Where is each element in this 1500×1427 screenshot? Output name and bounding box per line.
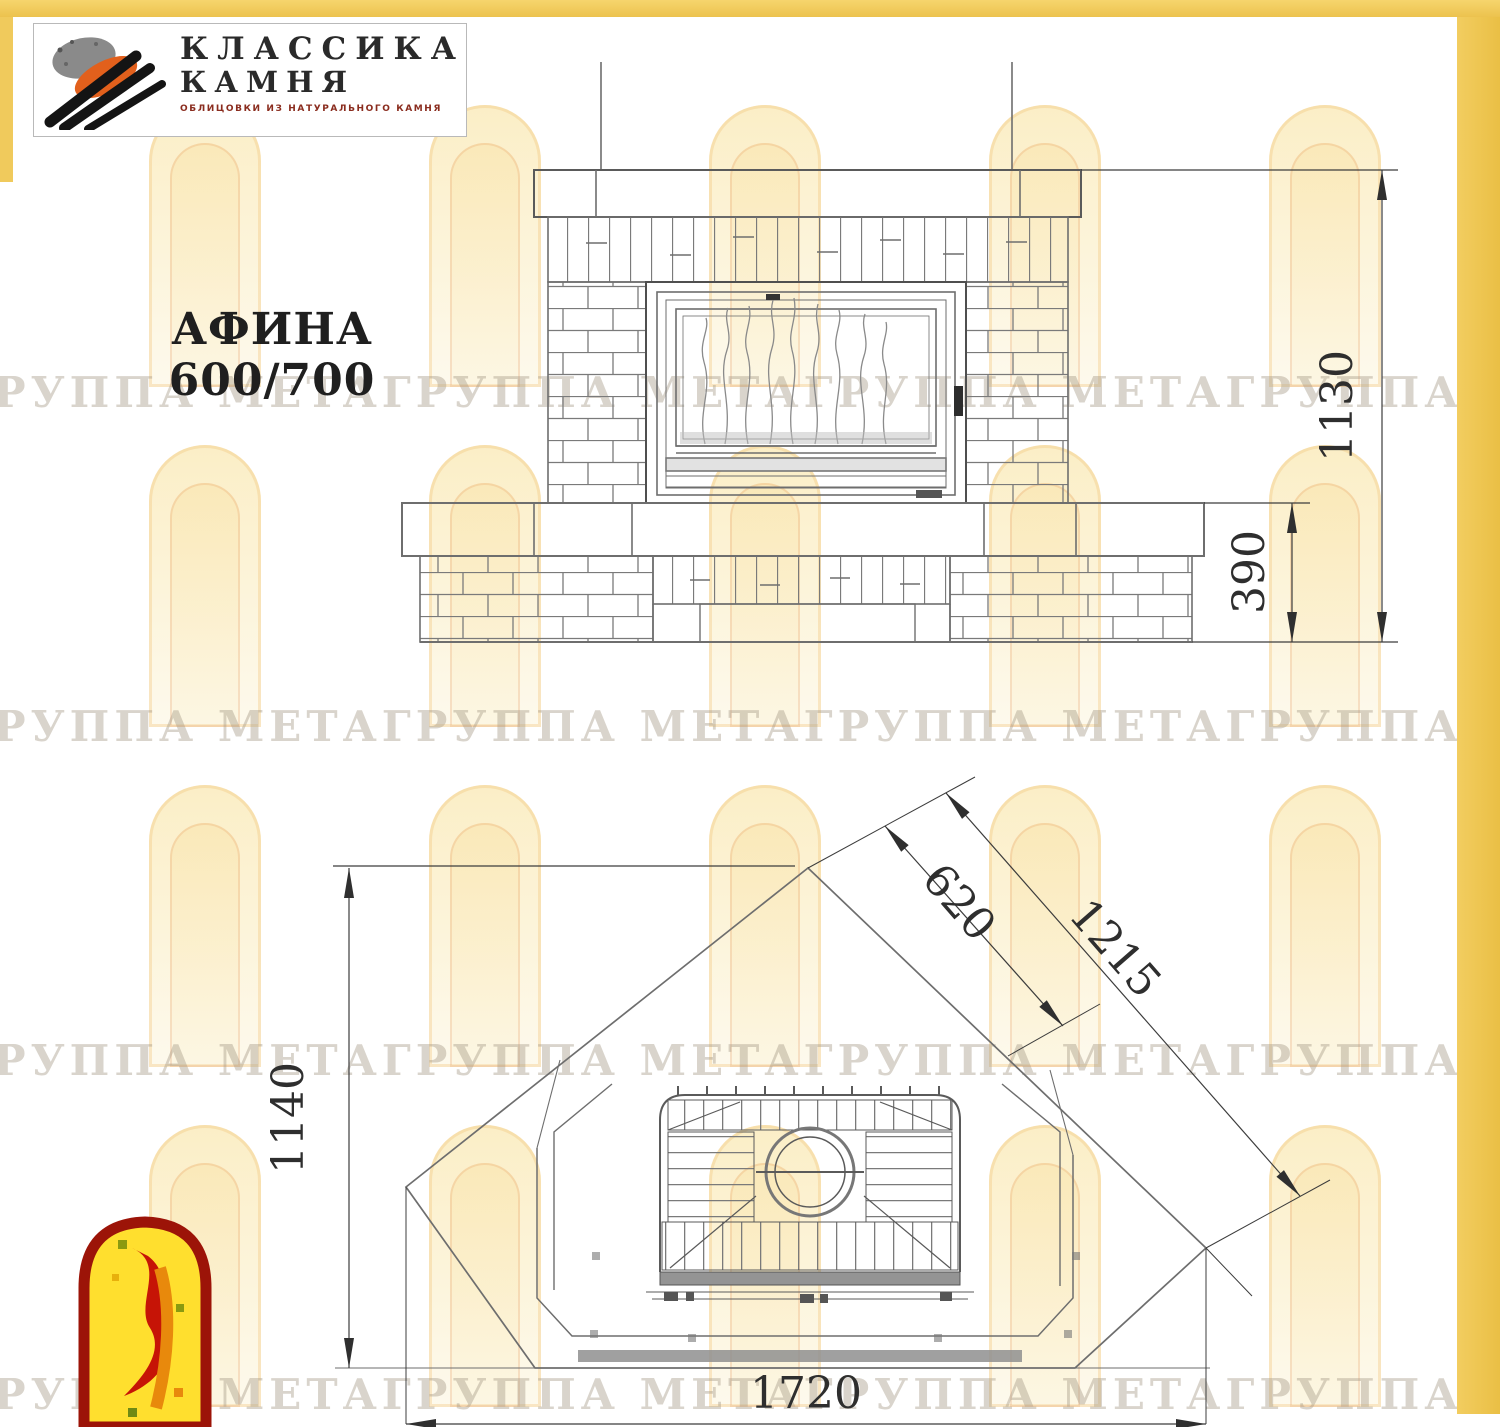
company-logo: КЛАССИКА КАМНЯ ОБЛИЦОВКИ ИЗ НАТУРАЛЬНОГО…	[33, 23, 467, 137]
mantel-shelf	[534, 170, 1081, 217]
wood-niche	[700, 604, 915, 642]
frame-strip-left	[0, 17, 13, 182]
page: ГРУППА МЕТАГРУППА МЕТАГРУППА МЕТАГРУППА …	[0, 0, 1500, 1427]
plan-view-drawing: 1140 1720 620 1215	[260, 740, 1360, 1427]
company-subtitle: ОБЛИЦОВКИ ИЗ НАТУРАЛЬНОГО КАМНЯ	[180, 104, 466, 114]
dim-inner-diag: 620	[912, 854, 1006, 951]
fireplace-structure	[402, 62, 1204, 642]
dim-width: 1720	[750, 1368, 862, 1419]
company-name-line2: КАМНЯ	[180, 66, 466, 98]
firebox-feet	[664, 1292, 952, 1303]
hearth-slab	[402, 503, 1204, 556]
frame-strip-right	[1457, 17, 1500, 1414]
masonry-base	[420, 556, 1192, 642]
dim-total-height: 1130	[1312, 350, 1363, 462]
dim-base-height: 390	[1224, 530, 1275, 614]
flames	[680, 298, 932, 444]
dim-depth: 1140	[263, 1062, 314, 1174]
watermark-arch	[149, 445, 261, 727]
watermark-arch	[149, 785, 261, 1067]
right-brick-column	[966, 282, 1068, 503]
frame-strip-top	[0, 0, 1500, 17]
company-name: КЛАССИКА КАМНЯ ОБЛИЦОВКИ ИЗ НАТУРАЛЬНОГО…	[180, 32, 466, 114]
model-title: АФИНА 600/700	[62, 304, 482, 406]
left-brick-column	[548, 282, 646, 503]
door-handle	[954, 386, 963, 416]
stone-logo-icon	[44, 30, 172, 130]
dim-outer-diag: 1215	[1059, 889, 1171, 1007]
brick-frieze	[548, 217, 1068, 282]
fire-insert	[646, 282, 966, 503]
front-elevation-drawing: 1130 390	[380, 40, 1440, 680]
firebox-top-view	[590, 1086, 1080, 1342]
company-name-line1: КЛАССИКА	[180, 32, 466, 66]
meta-group-emblem	[76, 1212, 214, 1427]
chimney-lines	[601, 62, 1012, 170]
